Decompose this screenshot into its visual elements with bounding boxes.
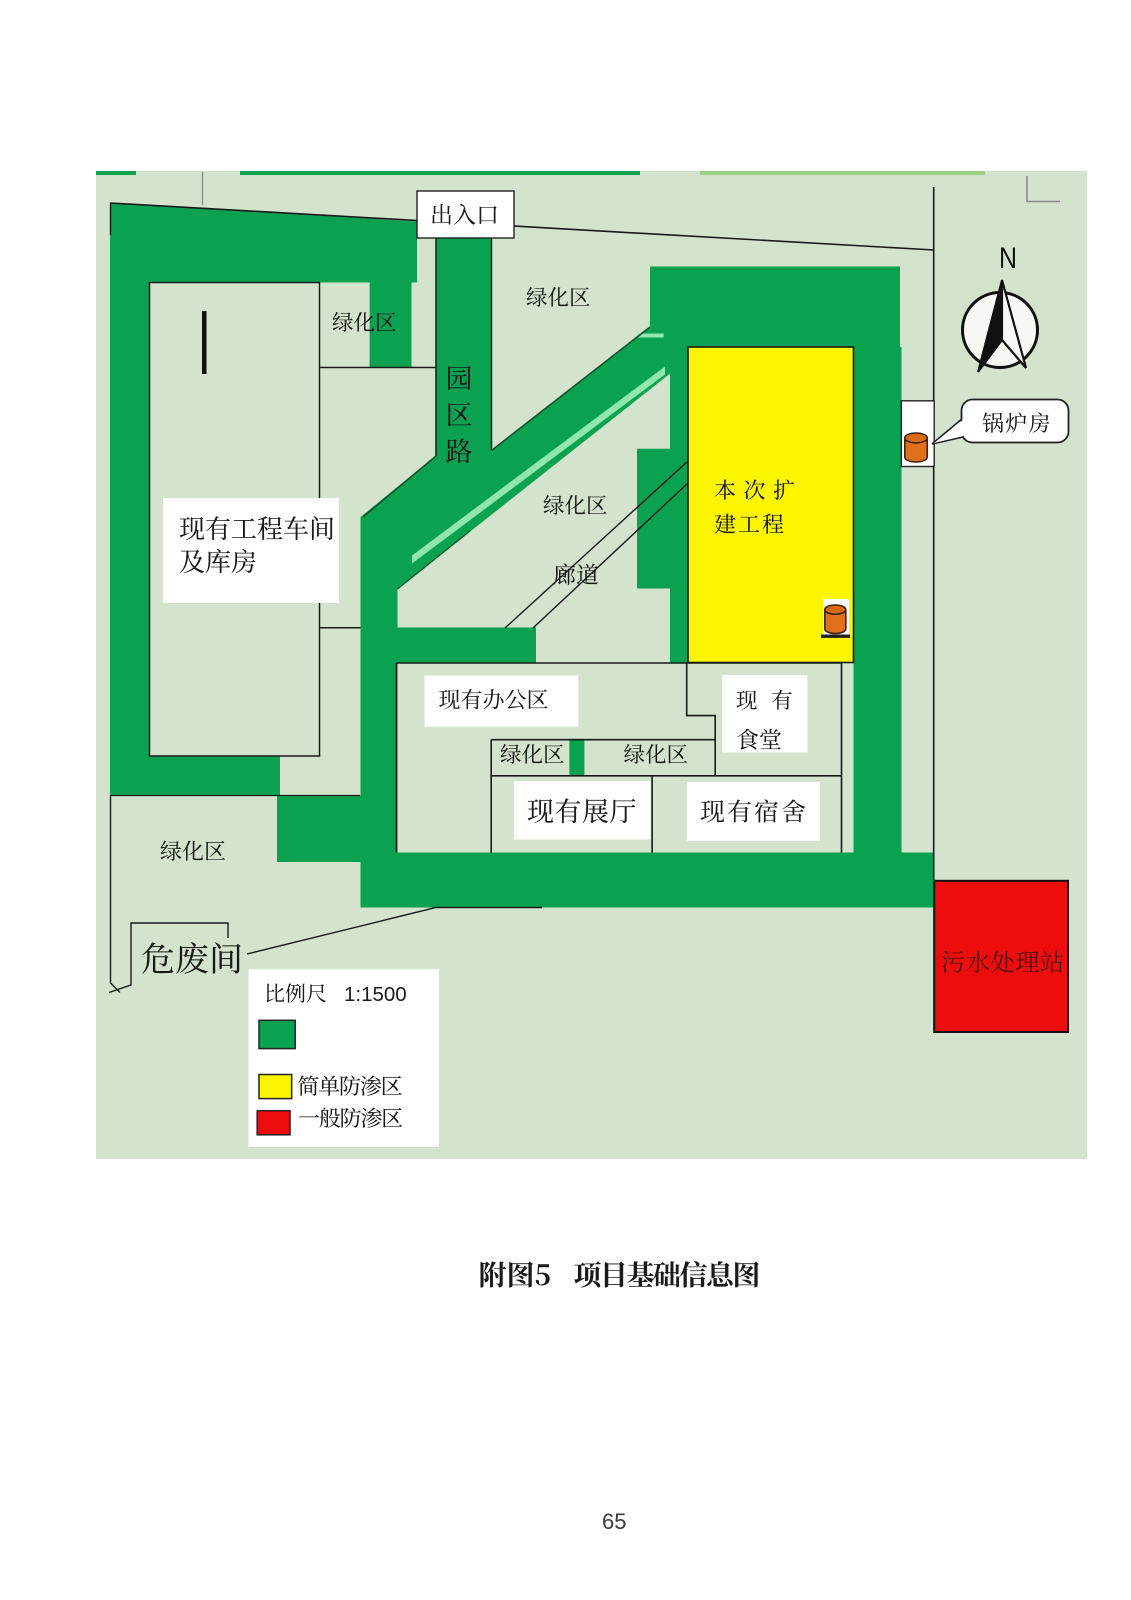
- svg-text:65: 65: [602, 1509, 626, 1534]
- svg-text:1:1500: 1:1500: [344, 983, 407, 1006]
- svg-text:N: N: [999, 242, 1017, 275]
